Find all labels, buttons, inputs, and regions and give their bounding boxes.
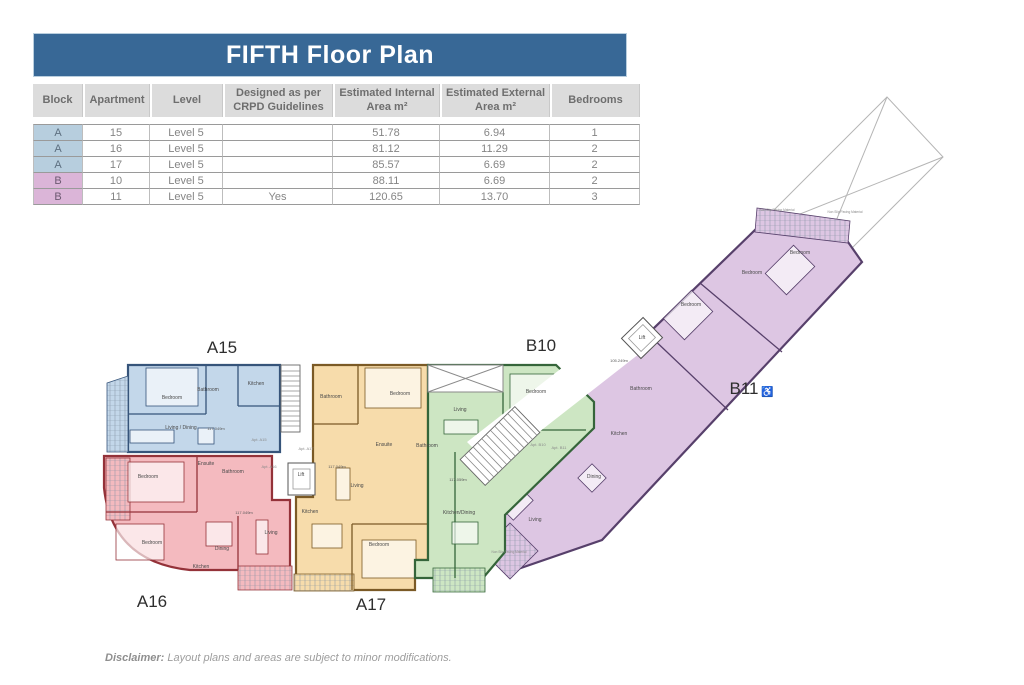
room-label: Bathroom bbox=[320, 394, 342, 400]
room-label: Bathroom bbox=[222, 469, 244, 475]
disclaimer: Disclaimer: Layout plans and areas are s… bbox=[105, 652, 452, 664]
room-label: Kitchen bbox=[302, 509, 319, 515]
room-label: Bedroom bbox=[369, 542, 389, 548]
room-label: Bedroom bbox=[742, 270, 762, 276]
room-label: Bathroom bbox=[416, 443, 438, 449]
disclaimer-text: Layout plans and areas are subject to mi… bbox=[164, 652, 451, 664]
terrace-label: Non Slip Paving Material bbox=[828, 210, 863, 214]
marker-label: 105.249m bbox=[610, 358, 628, 363]
a17-balcony-bottom bbox=[294, 574, 354, 591]
lift-block-a bbox=[288, 463, 315, 495]
door-label: Apt. B10 bbox=[530, 442, 546, 447]
room-label: Kitchen bbox=[611, 431, 628, 437]
room-label: Bathroom bbox=[197, 387, 219, 393]
terrace-label: Non Slip Paving Material bbox=[492, 550, 527, 554]
stairwell-left bbox=[281, 365, 300, 432]
room-label: Living / Dining bbox=[165, 425, 197, 431]
room-label: Bedroom bbox=[681, 302, 701, 308]
door-label: Apt. B11 bbox=[551, 445, 567, 450]
marker-label: 117.049m bbox=[328, 464, 346, 469]
room-label: Living bbox=[528, 517, 541, 523]
disclaimer-prefix: Disclaimer: bbox=[105, 652, 164, 664]
a15-balcony bbox=[107, 376, 128, 452]
room-label: Bedroom bbox=[390, 391, 410, 397]
room-label: Living bbox=[264, 530, 277, 536]
room-label: Bedroom bbox=[162, 395, 182, 401]
a16-balcony-left bbox=[106, 458, 130, 520]
page: FIFTH Floor Plan BlockApartmentLevelDesi… bbox=[0, 0, 1024, 685]
room-label: Ensuite bbox=[198, 461, 215, 467]
b10-balcony-bottom bbox=[433, 568, 485, 592]
room-label: Dining bbox=[587, 474, 601, 480]
floor-plan-diagram: BedroomBathroomKitchenLiving / DiningBed… bbox=[0, 0, 1024, 685]
room-label: Kitchen/Dining bbox=[443, 510, 475, 516]
marker-label: 117.049m bbox=[207, 426, 225, 431]
apartment-label-b11: B11 bbox=[730, 379, 759, 398]
door-label: Apt. A17 bbox=[298, 446, 314, 451]
terrace-label: Non Slip Paving Material bbox=[760, 208, 795, 212]
service-shaft bbox=[428, 365, 503, 392]
door-label: Apt. A16 bbox=[261, 464, 277, 469]
room-label: Bedroom bbox=[790, 250, 810, 256]
a16-balcony-bottom bbox=[238, 566, 292, 590]
room-label: Kitchen bbox=[193, 564, 210, 570]
door-label: Apt. A15 bbox=[251, 437, 267, 442]
apartment-label-a15: A15 bbox=[207, 338, 237, 357]
accessibility-icon: ♿ bbox=[761, 385, 773, 398]
room-label: Bedroom bbox=[138, 474, 158, 480]
room-label: Lift bbox=[298, 472, 305, 478]
room-label: Lift bbox=[639, 335, 646, 341]
room-label: Dining bbox=[215, 546, 229, 552]
marker-label: 117.059m bbox=[449, 477, 467, 482]
room-label: Living bbox=[453, 407, 466, 413]
room-label: Bedroom bbox=[526, 389, 546, 395]
apartment-label-a17: A17 bbox=[356, 595, 386, 614]
room-label: Ensuite bbox=[376, 442, 393, 448]
room-label: Bathroom bbox=[630, 386, 652, 392]
apartment-label-a16: A16 bbox=[137, 592, 167, 611]
room-label: Kitchen bbox=[248, 381, 265, 387]
marker-label: 117.049m bbox=[235, 510, 253, 515]
apartment-label-b10: B10 bbox=[526, 336, 556, 355]
room-label: Living bbox=[350, 483, 363, 489]
room-label: Bedroom bbox=[142, 540, 162, 546]
